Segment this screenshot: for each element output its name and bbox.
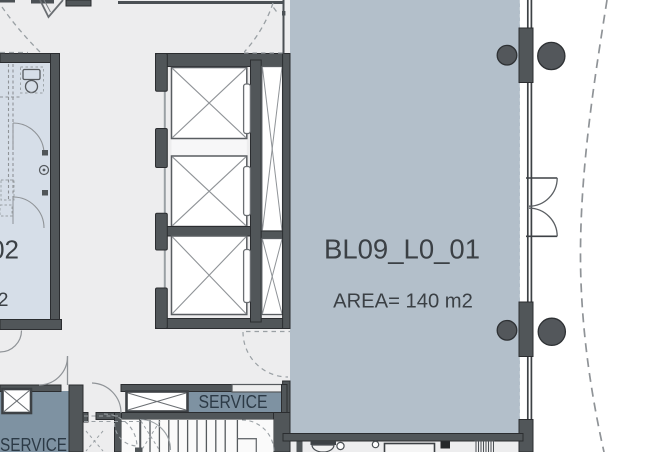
svg-text:BL09_L0_02: BL09_L0_02 bbox=[0, 235, 19, 265]
svg-text:SERVICE: SERVICE bbox=[199, 392, 268, 412]
svg-text:BL09_L0_01: BL09_L0_01 bbox=[324, 234, 480, 265]
svg-text:AREA= 95 m2: AREA= 95 m2 bbox=[0, 289, 9, 311]
svg-text:AREA= 140 m2: AREA= 140 m2 bbox=[333, 291, 473, 313]
svg-text:SERVICE: SERVICE bbox=[0, 435, 67, 452]
